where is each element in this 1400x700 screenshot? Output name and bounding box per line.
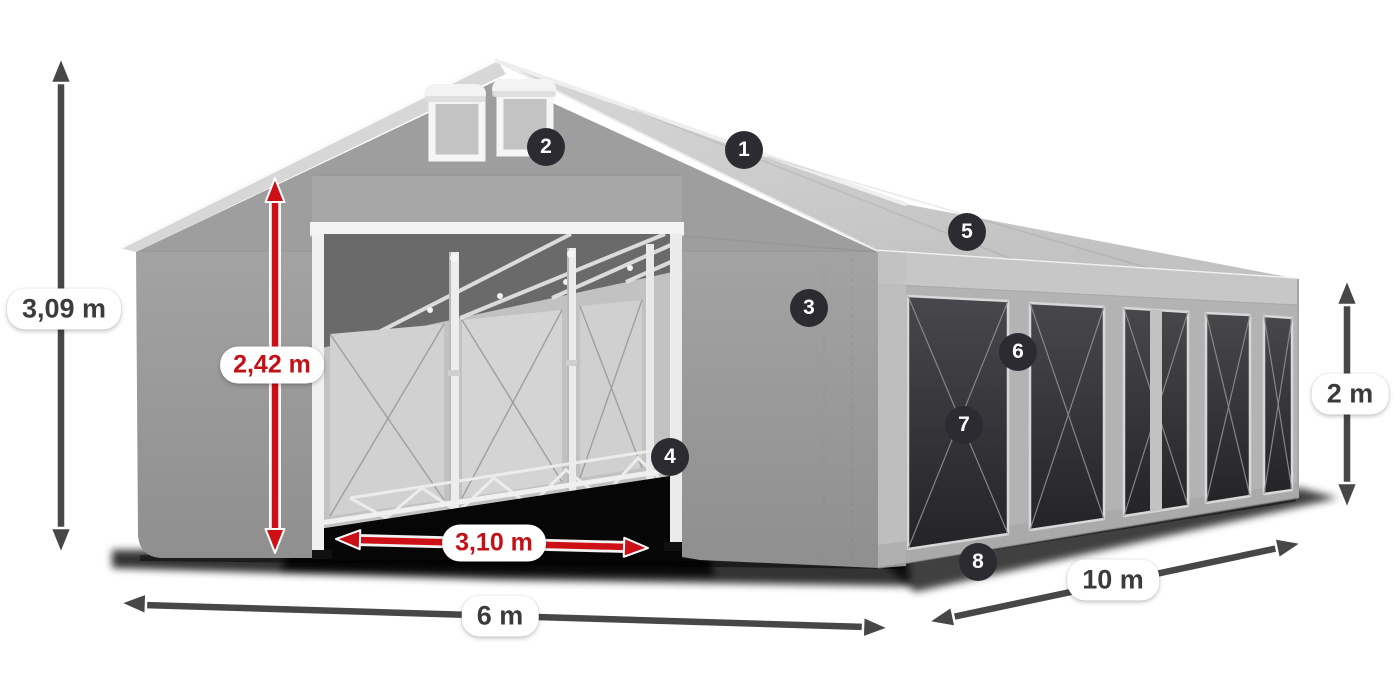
tent-illustration xyxy=(0,0,1400,700)
callout-badge-5[interactable]: 5 xyxy=(948,213,986,251)
entrance-leg-left xyxy=(312,234,324,556)
entrance-interior xyxy=(306,234,690,560)
dimension-label-front-width: 6 m xyxy=(462,596,539,637)
front-wall-left xyxy=(136,252,312,558)
entrance-leg-right xyxy=(670,234,682,544)
callout-badge-4[interactable]: 4 xyxy=(651,438,689,476)
callout-badge-3[interactable]: 3 xyxy=(790,289,828,327)
dimension-label-side-height: 2 m xyxy=(1312,374,1389,415)
side-door-mullion xyxy=(1150,309,1162,512)
dimension-label-total-height: 3,09 m xyxy=(7,289,121,330)
dimension-label-entrance-width: 3,10 m xyxy=(442,525,546,562)
dimension-label-entrance-height: 2,42 m xyxy=(220,347,324,384)
callout-badge-1[interactable]: 1 xyxy=(725,131,763,169)
front-wall-right xyxy=(682,252,878,568)
callout-badge-7[interactable]: 7 xyxy=(945,406,983,444)
entrance-lintel xyxy=(310,222,684,236)
dimension-label-side-length: 10 m xyxy=(1067,560,1159,601)
side-corner-post xyxy=(878,251,906,568)
callout-badge-2[interactable]: 2 xyxy=(527,128,565,166)
callout-badge-6[interactable]: 6 xyxy=(999,333,1037,371)
callout-badge-8[interactable]: 8 xyxy=(959,543,997,581)
entrance-header xyxy=(310,174,684,236)
tent-dimension-diagram: 3,09 m 2,42 m 3,10 m 6 m 10 m 2 m 1 2 3 … xyxy=(0,0,1400,700)
